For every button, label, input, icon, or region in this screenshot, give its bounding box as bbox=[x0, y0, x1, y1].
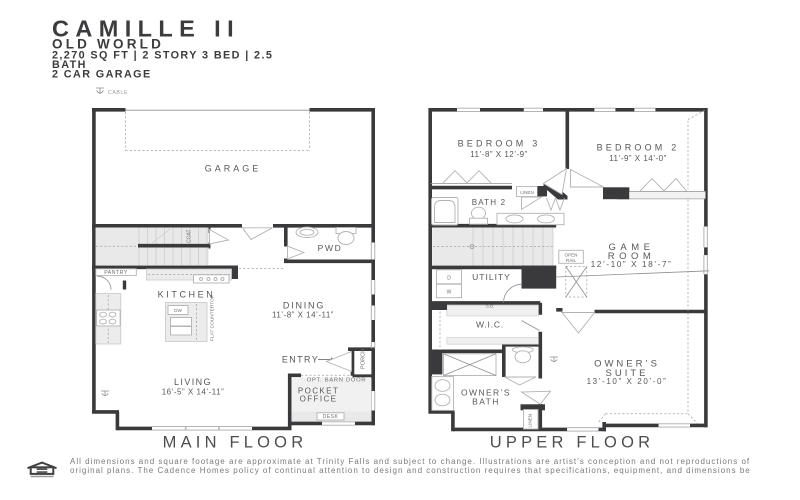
svg-text:CABLE: CABLE bbox=[108, 90, 128, 96]
svg-text:2 CAR GARAGE: 2 CAR GARAGE bbox=[52, 68, 152, 80]
svg-text:PWD: PWD bbox=[318, 243, 343, 253]
svg-text:original plans. The Cadence Ho: original plans. The Cadence Homes policy… bbox=[70, 466, 751, 475]
svg-text:DINING: DINING bbox=[283, 301, 325, 311]
svg-text:PANTRY: PANTRY bbox=[104, 270, 128, 276]
svg-text:UTILITY: UTILITY bbox=[472, 272, 511, 282]
svg-text:11’-9” X 14’-0”: 11’-9” X 14’-0” bbox=[609, 154, 667, 163]
svg-text:LINEN: LINEN bbox=[528, 414, 533, 428]
svg-text:BATH 2: BATH 2 bbox=[472, 198, 507, 207]
svg-text:LIVING: LIVING bbox=[174, 377, 212, 387]
svg-text:FLAT COUNTERTOP: FLAT COUNTERTOP bbox=[210, 295, 216, 341]
svg-text:D: D bbox=[447, 275, 451, 281]
svg-text:13’-10” X 20’-0”: 13’-10” X 20’-0” bbox=[587, 377, 668, 386]
svg-text:DESK: DESK bbox=[323, 414, 339, 420]
svg-text:UPPER FLOOR: UPPER FLOOR bbox=[490, 434, 654, 452]
svg-text:DW: DW bbox=[174, 308, 182, 313]
svg-text:OPEN: OPEN bbox=[564, 252, 577, 257]
svg-text:BEDROOM 2: BEDROOM 2 bbox=[597, 143, 680, 153]
svg-text:S.B.: S.B. bbox=[486, 304, 494, 309]
svg-text:W.I.C.: W.I.C. bbox=[476, 320, 504, 330]
svg-text:BEDROOM 3: BEDROOM 3 bbox=[458, 139, 541, 149]
svg-text:W: W bbox=[447, 290, 452, 296]
svg-text:All dimensions and square foot: All dimensions and square footage are ap… bbox=[70, 457, 750, 466]
svg-text:LINEN: LINEN bbox=[520, 190, 534, 195]
svg-text:BATH: BATH bbox=[472, 396, 500, 406]
svg-text:MAIN FLOOR: MAIN FLOOR bbox=[163, 434, 308, 452]
svg-text:11’-8” X 12’-9”: 11’-8” X 12’-9” bbox=[470, 150, 528, 159]
svg-text:GARAGE: GARAGE bbox=[205, 164, 262, 174]
svg-text:RAIL: RAIL bbox=[566, 258, 577, 263]
svg-text:KITCHEN: KITCHEN bbox=[158, 290, 216, 300]
svg-text:11’-8” X 14’-11”: 11’-8” X 14’-11” bbox=[272, 311, 334, 320]
svg-text:OPT. BARN DOOR: OPT. BARN DOOR bbox=[307, 377, 366, 383]
svg-text:OFFICE: OFFICE bbox=[300, 395, 338, 404]
svg-text:PORCH: PORCH bbox=[361, 349, 367, 369]
svg-text:ENTRY: ENTRY bbox=[282, 355, 319, 365]
svg-text:COAT: COAT bbox=[187, 229, 193, 243]
svg-text:16’-5” X 14’-11”: 16’-5” X 14’-11” bbox=[162, 388, 225, 397]
svg-text:12’-10” X 18’-7”: 12’-10” X 18’-7” bbox=[591, 259, 673, 269]
